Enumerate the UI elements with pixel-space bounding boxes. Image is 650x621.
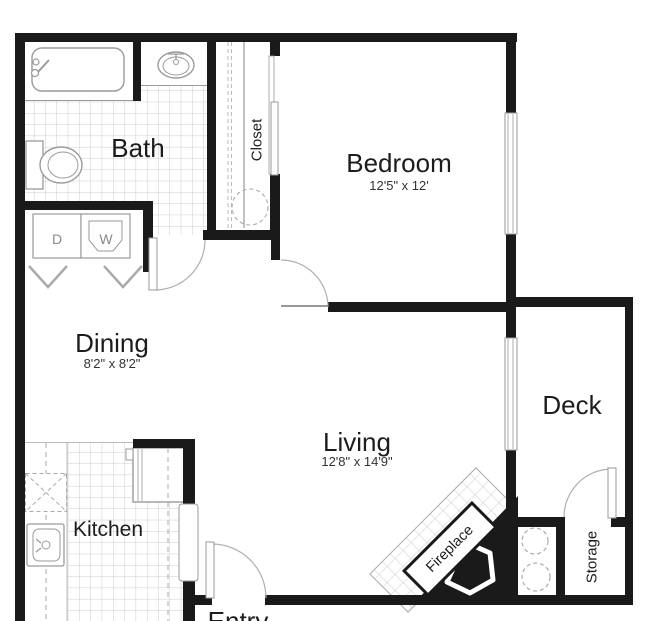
kitchen-label: Kitchen [73,518,143,541]
dining-label: Dining [75,328,149,358]
wall-closet-right-top [270,42,280,56]
bedroom-label: Bedroom [346,148,452,178]
living-deck-window [505,338,517,450]
wall-left [15,33,25,621]
dining-dimensions: 8'2" x 8'2" [84,356,141,371]
wall-deck-top [516,297,633,307]
wall-living-deck-lower [506,450,516,605]
wall-bath-bottom [25,201,143,210]
wall-bedroom-right-top [506,42,516,113]
wall-bottom-main [265,595,633,605]
wall-tub-divider [133,42,141,101]
wall-top [15,33,517,42]
bathtub [32,48,125,91]
closet-label: Closet [249,118,266,161]
wall-hall [203,230,280,240]
washer-label: W [99,231,113,247]
refrigerator [126,448,185,502]
pantry-door-leaf [179,504,198,581]
living-label: Living [323,427,391,457]
storage-label: Storage [584,531,601,584]
floorplan-page: D W Fireplace Bath Closet Bedroom 12'5" … [0,0,650,621]
bathroom-sink [158,52,194,78]
bath-label: Bath [111,133,165,163]
bedroom-dimensions: 12'5" x 12' [369,178,428,193]
wall-bedroom-right-mid [506,234,516,338]
wall-deck-right [625,297,633,605]
wall-closet-right-bottom [270,174,280,240]
dryer-label: D [52,231,62,247]
entry-label: Entry [208,606,269,621]
deck-label: Deck [542,390,602,420]
kitchen-sink [27,524,64,566]
wall-bath-closet [207,42,216,240]
wall-bedroom-bottom [328,302,516,312]
wall-kitchen-top [133,439,195,448]
bedroom-window [505,113,517,234]
kitchen-range [26,474,67,512]
wall-utility-right [556,517,565,605]
wall-bedroom-door-stub [271,240,280,260]
floorplan-canvas: D W Fireplace Bath Closet Bedroom 12'5" … [0,0,650,621]
living-dimensions: 12'8" x 14'9" [321,454,393,469]
